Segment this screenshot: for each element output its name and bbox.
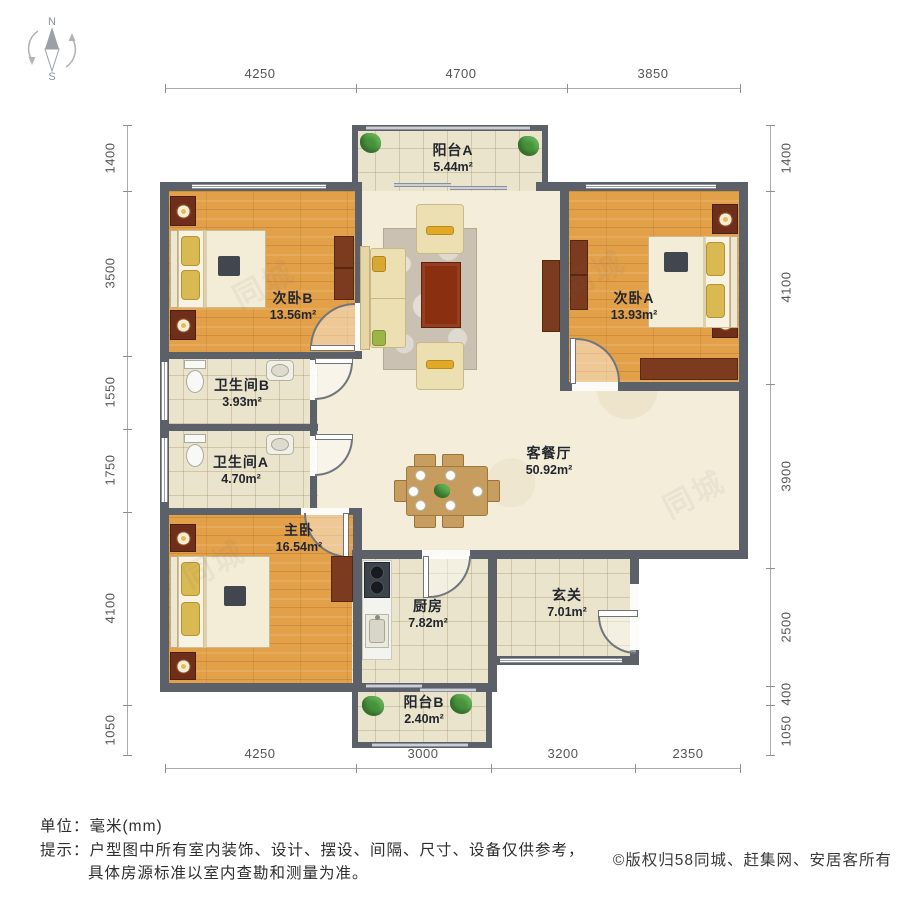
plate (415, 500, 426, 511)
dimension-label: 1050 (103, 715, 118, 746)
dining-chair (414, 514, 436, 528)
coffee-table (421, 262, 461, 328)
wall (486, 683, 492, 748)
tick (740, 84, 741, 93)
dimension-line-left (127, 125, 128, 755)
room-label-bathroom-b: 卫生间B 3.93m² (214, 376, 270, 410)
tv-cabinet (542, 260, 560, 332)
dimension-label: 3850 (638, 66, 669, 81)
tip-note-line2: 具体房源标准以室内查勘和测量为准。 (88, 861, 369, 883)
toilet-bowl (186, 370, 204, 393)
wall (160, 182, 169, 361)
compass: N S (22, 14, 82, 82)
compass-arc-left (29, 31, 38, 60)
unit-value: 毫米(mm) (90, 818, 163, 835)
room-label-living-dining: 客餐厅 50.92m² (526, 444, 573, 478)
sofa-pillow (372, 256, 386, 272)
tick (491, 764, 492, 773)
dimension-label: 4250 (245, 66, 276, 81)
nightstand (712, 204, 738, 234)
room-label-balcony-b: 阳台B 2.40m² (403, 693, 444, 727)
sliding-door-panel (420, 688, 476, 692)
room-label-balcony-a: 阳台A 5.44m² (432, 141, 473, 175)
nightstand (170, 310, 196, 340)
room-name: 卫生间B (214, 376, 270, 394)
wall (739, 382, 748, 559)
dimension-label: 1750 (103, 455, 118, 486)
nightstand (170, 196, 196, 226)
dimension-line-bottom (165, 768, 740, 769)
sliding-door-panel (394, 183, 451, 187)
sliding-door-panel (450, 186, 507, 190)
tick (165, 84, 166, 93)
room-label-master-bedroom: 主卧 16.54m² (276, 521, 323, 555)
wall (160, 424, 318, 431)
pillow (706, 242, 725, 276)
window (586, 184, 716, 189)
wardrobe (334, 236, 354, 300)
door-leaf (315, 434, 353, 440)
sink-basin (271, 438, 289, 451)
tick (165, 764, 166, 773)
room-area: 5.44m² (432, 159, 473, 175)
dimension-label: 3900 (779, 461, 794, 492)
floorplan-canvas: N S 4250 4700 3850 4250 3000 3200 2350 1… (0, 0, 900, 900)
dimension-line-top (165, 88, 740, 89)
door-leaf (570, 338, 576, 384)
dimension-label: 4250 (245, 746, 276, 761)
copyright-note: ©版权归58同城、赶集网、安居客所有 (613, 848, 892, 870)
wall (488, 550, 497, 692)
door-opening (572, 382, 618, 391)
stove (364, 562, 390, 598)
tick (635, 764, 636, 773)
compass-north-label: N (48, 16, 56, 28)
dimension-label: 1400 (779, 143, 794, 174)
bed-headboard (730, 236, 738, 328)
room-area: 13.93m² (611, 307, 658, 323)
faucet (375, 615, 380, 620)
dining-chair (486, 480, 500, 502)
compass-arc-right (66, 38, 75, 67)
dimension-label: 2350 (673, 746, 704, 761)
tick (766, 755, 775, 756)
tick (766, 191, 775, 192)
plant (518, 136, 539, 156)
copyright-text: ©版权归58同城、赶集网、安居客所有 (613, 852, 892, 869)
tick (356, 84, 357, 93)
window (366, 126, 530, 130)
plate (445, 470, 456, 481)
compass-arrowhead-left (29, 57, 36, 65)
sofa-pillow (372, 330, 386, 346)
room-name: 玄关 (547, 586, 587, 604)
door-leaf (343, 513, 349, 558)
pillow (181, 270, 200, 300)
plate (415, 470, 426, 481)
room-area: 50.92m² (526, 462, 573, 478)
room-name: 卫生间A (213, 453, 269, 471)
tip-line2: 具体房源标准以室内查勘和测量为准。 (88, 865, 369, 882)
dimension-label: 400 (779, 682, 794, 705)
dresser (640, 358, 738, 380)
unit-label: 单位： (40, 818, 90, 835)
door-leaf (310, 345, 355, 351)
dresser (331, 556, 353, 602)
toilet-bowl (186, 444, 204, 467)
door-leaf (423, 556, 429, 598)
room-name: 厨房 (408, 597, 448, 615)
tick (356, 764, 357, 773)
plant (360, 133, 381, 153)
wall (160, 508, 169, 692)
tick (766, 705, 775, 706)
room-area: 7.82m² (408, 615, 448, 631)
tick (123, 191, 132, 192)
sink-basin (271, 364, 289, 377)
tip-label: 提示： (40, 842, 90, 859)
plate (408, 486, 419, 497)
pillow (181, 236, 200, 266)
door-leaf (598, 610, 638, 617)
room-name: 次卧B (270, 289, 317, 307)
room-name: 客餐厅 (526, 444, 573, 462)
tick (740, 764, 741, 773)
plant (362, 696, 384, 716)
toilet-tank (184, 360, 206, 369)
tip-note: 提示：户型图中所有室内装饰、设计、摆设、间隔、尺寸、设备仅供参考， (40, 838, 585, 860)
room-area: 2.40m² (403, 711, 444, 727)
wall (739, 182, 748, 391)
armchair-cushion (426, 226, 454, 235)
pillow (181, 562, 200, 596)
bedside-lamp (718, 212, 733, 227)
room-area: 16.54m² (276, 539, 323, 555)
window (161, 438, 168, 502)
window (372, 743, 468, 747)
tip-line1: 户型图中所有室内装饰、设计、摆设、间隔、尺寸、设备仅供参考， (90, 842, 585, 859)
bedside-lamp (176, 531, 191, 546)
armchair-cushion (426, 360, 454, 369)
pillow (181, 602, 200, 636)
dimension-label: 1050 (779, 716, 794, 747)
room-area: 7.01m² (547, 604, 587, 620)
tick (123, 125, 132, 126)
dimension-line-right (770, 125, 771, 755)
bedside-lamp (176, 204, 191, 219)
room-area: 13.56m² (270, 307, 317, 323)
room-name: 阳台B (403, 693, 444, 711)
wall (352, 683, 358, 748)
dimension-label: 3500 (103, 258, 118, 289)
plate (445, 500, 456, 511)
dimension-label: 2500 (779, 612, 794, 643)
window (500, 658, 622, 663)
dimension-label: 4700 (446, 66, 477, 81)
wall (488, 550, 639, 559)
dimension-label: 1400 (103, 143, 118, 174)
tick (123, 356, 132, 357)
wall (160, 683, 362, 692)
sliding-door-panel (366, 684, 422, 688)
sink-basin (369, 619, 385, 643)
tick (766, 125, 775, 126)
dining-chair (442, 514, 464, 528)
room-label-entry: 玄关 7.01m² (547, 586, 587, 620)
room-area: 3.93m² (214, 394, 270, 410)
sofa-back (360, 246, 370, 350)
tick (766, 568, 775, 569)
compass-south-label: S (48, 71, 55, 82)
tick (567, 84, 568, 93)
window (192, 184, 326, 189)
bedside-lamp (176, 659, 191, 674)
door-leaf (315, 358, 353, 364)
toilet-tank (184, 434, 206, 443)
table-plant (434, 484, 450, 498)
room-label-bathroom-a: 卫生间A 4.70m² (213, 453, 269, 487)
bed-tray (664, 252, 688, 272)
plate (472, 486, 483, 497)
bed-headboard (170, 556, 178, 648)
tick (123, 705, 132, 706)
kitchen-sink (365, 614, 389, 648)
room-label-bedroom-b: 次卧B 13.56m² (270, 289, 317, 323)
bathroom-sink (266, 360, 294, 381)
bedside-lamp (176, 318, 191, 333)
dimension-label: 3000 (408, 746, 439, 761)
wardrobe (570, 240, 588, 310)
tick (123, 512, 132, 513)
nightstand (170, 524, 196, 552)
dimension-label: 4100 (779, 272, 794, 303)
room-area: 4.70m² (213, 471, 269, 487)
dimension-label: 4100 (103, 593, 118, 624)
room-label-kitchen: 厨房 7.82m² (408, 597, 448, 631)
tick (766, 384, 775, 385)
nightstand (170, 652, 196, 680)
plant (450, 694, 472, 714)
tick (123, 429, 132, 430)
compass-arrowhead-right (69, 33, 76, 41)
dimension-label: 3200 (548, 746, 579, 761)
wall (353, 508, 362, 692)
room-name: 阳台A (432, 141, 473, 159)
room-label-bedroom-a: 次卧A 13.93m² (611, 289, 658, 323)
compass-needle-north (45, 27, 59, 49)
window (161, 362, 168, 420)
unit-note: 单位：毫米(mm) (40, 814, 163, 836)
tick (123, 755, 132, 756)
room-name: 次卧A (611, 289, 658, 307)
pillow (706, 284, 725, 318)
bed-headboard (170, 230, 178, 308)
wall (560, 182, 569, 391)
compass-needle-south (45, 49, 59, 71)
tick (766, 686, 775, 687)
bathroom-sink (266, 434, 294, 455)
room-name: 主卧 (276, 521, 323, 539)
bed-tray (218, 256, 240, 276)
dimension-label: 1550 (103, 377, 118, 408)
bed-tray (224, 586, 246, 606)
wall (630, 550, 748, 559)
